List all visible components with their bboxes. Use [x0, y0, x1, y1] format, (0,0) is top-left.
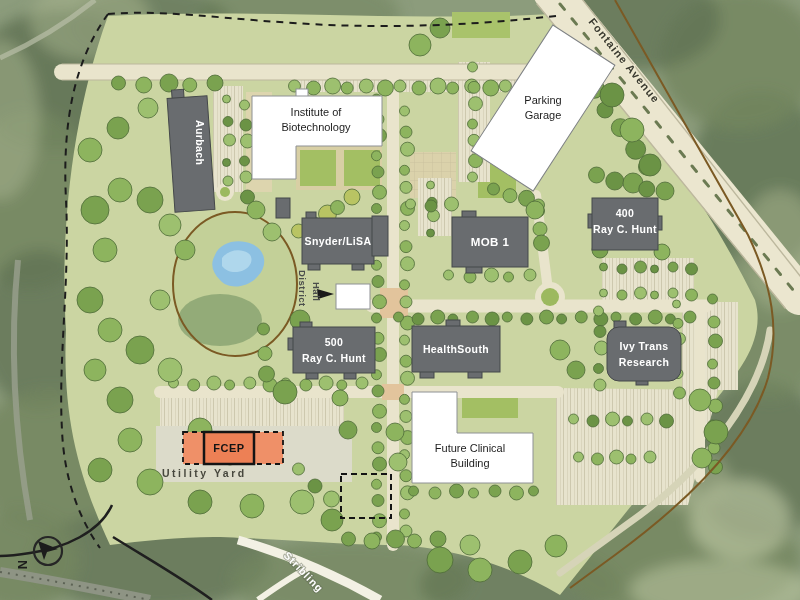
tree-icon [400, 470, 412, 482]
tree-icon [308, 479, 322, 493]
tree-icon [412, 81, 426, 95]
tree-icon [606, 172, 624, 190]
tree-icon [258, 347, 272, 361]
building-rch400-label-line1: 400 [616, 207, 635, 219]
tree-icon [431, 310, 445, 324]
tree-icon [450, 484, 464, 498]
tree-icon [183, 78, 197, 92]
tree-icon [188, 490, 212, 514]
tree-icon [529, 486, 539, 496]
tree-icon [510, 486, 524, 500]
tree-icon [594, 306, 604, 316]
tree-icon [668, 262, 678, 272]
tree-icon [430, 78, 446, 94]
tree-icon [427, 229, 435, 237]
tree-icon [377, 80, 393, 96]
tree-icon [136, 77, 152, 93]
tree-icon [372, 385, 384, 397]
tree-icon [240, 119, 252, 131]
tree-icon [373, 404, 387, 418]
district-hall-label-line1: District [297, 270, 308, 307]
tree-icon [244, 377, 256, 389]
tree-icon [137, 187, 163, 213]
site-plan-map: Aurbach Institute of Biotechnology Parki… [0, 0, 800, 600]
tree-icon [408, 534, 422, 548]
building-aurbach-label: Aurbach [194, 120, 206, 165]
meadow-shade [178, 294, 262, 346]
tree-icon [307, 81, 321, 95]
tree-icon [240, 156, 250, 166]
tree-icon [526, 201, 544, 219]
tree-icon [445, 197, 459, 211]
tree-icon [207, 376, 221, 390]
tree-icon [107, 117, 129, 139]
tree-icon [668, 288, 678, 298]
tree-icon [81, 196, 109, 224]
tree-icon [400, 355, 412, 367]
tree-icon [247, 201, 265, 219]
tree-icon [77, 287, 103, 313]
tree-icon [594, 364, 604, 374]
tree-icon [626, 454, 636, 464]
tree-icon [469, 488, 479, 498]
tree-icon [400, 280, 410, 290]
tree-icon [600, 289, 608, 297]
tree-icon [373, 295, 387, 309]
tree-icon [409, 34, 431, 56]
tree-icon [325, 78, 341, 94]
tree-icon [617, 264, 627, 274]
tree-icon [639, 154, 661, 176]
tree-icon [401, 257, 415, 271]
tree-icon [606, 412, 620, 426]
building-garage-label-line1: Parking [524, 94, 561, 106]
tree-icon [468, 62, 478, 72]
tree-icon [485, 312, 499, 326]
tree-icon [293, 463, 305, 475]
building-ivy-trans-research [607, 321, 681, 385]
tree-icon [188, 379, 200, 391]
tree-icon [324, 491, 340, 507]
tree-icon [372, 276, 384, 288]
tree-icon [708, 359, 718, 369]
tree-icon [138, 98, 158, 118]
tree-icon [592, 453, 604, 465]
tree-icon [386, 423, 404, 441]
tree-icon [373, 514, 387, 528]
tree-icon [372, 479, 382, 489]
tree-icon [639, 181, 655, 197]
tree-icon [373, 457, 387, 471]
tree-icon [112, 76, 126, 90]
tree-icon [468, 81, 480, 93]
tree-icon [488, 183, 500, 195]
tree-icon [430, 531, 446, 547]
tree-icon [321, 509, 343, 531]
tree-icon [319, 376, 333, 390]
tree-icon [339, 421, 357, 439]
tree-icon [686, 289, 698, 301]
tree-icon [430, 18, 450, 38]
tree-icon [489, 485, 501, 497]
tree-icon [483, 80, 499, 96]
tree-icon [460, 535, 480, 555]
tree-icon [373, 185, 387, 199]
tree-icon [290, 490, 314, 514]
tree-icon [468, 119, 478, 129]
tree-icon [372, 151, 382, 161]
tree-icon [656, 182, 674, 200]
building-rch500-label-line1: 500 [325, 336, 344, 348]
tree-icon [708, 294, 718, 304]
tree-icon [574, 452, 584, 462]
building-future-clinical-label-line1: Future Clinical [435, 442, 505, 454]
tree-icon [240, 494, 264, 518]
tree-icon [331, 201, 345, 215]
tree-icon [126, 336, 154, 364]
building-biotech-label-line2: Biotechnology [281, 121, 351, 133]
tree-icon [504, 272, 514, 282]
tree-icon [389, 453, 407, 471]
building-fcep-label: FCEP [213, 442, 244, 454]
tree-icon [332, 390, 348, 406]
lawn-panel [300, 150, 336, 186]
tree-icon [575, 311, 587, 323]
tree-icon [223, 159, 231, 167]
tree-icon [630, 313, 642, 325]
tree-icon [342, 532, 356, 546]
building-healthsouth-label: HealthSouth [423, 343, 489, 355]
tree-icon [684, 311, 696, 323]
building-small-service [276, 198, 290, 218]
tree-icon [594, 326, 606, 338]
building-rch500-label-line2: Ray C. Hunt [302, 352, 366, 364]
tree-icon [409, 486, 419, 496]
tree-icon [372, 495, 384, 507]
tree-icon [521, 313, 533, 325]
building-district-hall [336, 284, 370, 309]
tree-icon [692, 448, 712, 468]
building-future-clinical-label-line2: Building [450, 457, 489, 469]
tree-icon [651, 265, 659, 273]
tree-icon [545, 535, 567, 557]
tree-icon [273, 380, 297, 404]
tree-icon [175, 240, 195, 260]
tree-icon [400, 394, 410, 404]
tree-icon [372, 442, 384, 454]
tree-icon [651, 291, 659, 299]
tree-icon [225, 380, 235, 390]
tree-icon [620, 118, 644, 142]
tree-icon [503, 189, 517, 203]
tree-icon [427, 547, 453, 573]
tree-icon [387, 530, 405, 548]
tree-icon [557, 314, 567, 324]
tree-icon [709, 334, 723, 348]
tree-icon [644, 451, 656, 463]
tree-icon [263, 223, 281, 241]
building-ivy-label-line1: Ivy Trans [619, 340, 668, 352]
building-small-service [372, 216, 388, 256]
tree-icon [337, 380, 347, 390]
tree-icon [467, 311, 479, 323]
tree-icon [159, 214, 181, 236]
district-hall-label-line2: Hall [311, 282, 322, 301]
tree-icon [600, 263, 608, 271]
tree-icon [444, 270, 454, 280]
tree-icon [469, 97, 483, 111]
tree-icon [708, 377, 720, 389]
tree-icon [540, 310, 554, 324]
tree-icon [412, 313, 424, 325]
tree-icon [240, 171, 252, 183]
tree-icon [158, 358, 182, 382]
tree-icon [406, 199, 416, 209]
tree-icon [224, 134, 236, 146]
tree-icon [356, 377, 368, 389]
lawn [452, 12, 510, 38]
tree-icon [300, 379, 312, 391]
building-rch400-label-line2: Ray C. Hunt [593, 223, 657, 235]
tree-icon [137, 469, 163, 495]
tree-icon [569, 414, 579, 424]
tree-icon [401, 142, 415, 156]
roundabout-lawn [541, 288, 559, 306]
tree-icon [499, 80, 511, 92]
tree-icon [84, 359, 106, 381]
building-snyder-label: Snyder/LiSA [305, 235, 372, 247]
tree-icon [704, 420, 728, 444]
tree-icon [372, 313, 382, 323]
building-garage-label-line2: Garage [525, 109, 562, 121]
tree-icon [673, 300, 681, 308]
tree-icon [689, 389, 711, 411]
tree-icon [258, 323, 270, 335]
compass-north-label: N [15, 560, 30, 569]
tree-icon [372, 423, 382, 433]
tree-icon [88, 458, 112, 482]
tree-icon [400, 221, 410, 231]
tree-icon [600, 83, 624, 107]
tree-icon [648, 310, 662, 324]
tree-icon [524, 269, 536, 281]
turnaround-lawn [220, 187, 230, 197]
tree-icon [98, 318, 122, 342]
tree-icon [635, 261, 647, 273]
tree-icon [341, 82, 353, 94]
campus-site-plan: Aurbach Institute of Biotechnology Parki… [0, 0, 800, 600]
tree-icon [78, 138, 102, 162]
tree-icon [259, 366, 275, 382]
tree-icon [447, 82, 459, 94]
tree-icon [617, 290, 627, 300]
tree-icon [567, 361, 585, 379]
tree-icon [610, 450, 624, 464]
tree-icon [589, 167, 605, 183]
tree-icon [533, 222, 547, 236]
tree-icon [641, 413, 653, 425]
tree-icon [594, 379, 606, 391]
tree-icon [400, 165, 410, 175]
tree-icon [429, 487, 441, 499]
tree-icon [223, 176, 233, 186]
tree-icon [372, 166, 384, 178]
tree-icon [400, 106, 410, 116]
tree-icon [400, 410, 412, 422]
tree-icon [240, 100, 250, 110]
tree-icon [534, 235, 550, 251]
tree-icon [468, 558, 492, 582]
tree-icon [674, 387, 686, 399]
tree-icon [400, 296, 412, 308]
tree-icon [400, 181, 412, 193]
tree-icon [635, 287, 647, 299]
tree-icon [468, 172, 478, 182]
tree-icon [107, 387, 133, 413]
building-500-ray-c-hunt [288, 322, 375, 379]
tree-icon [364, 533, 380, 549]
tree-icon [550, 340, 570, 360]
tree-icon [587, 415, 599, 427]
tree-icon [660, 414, 674, 428]
tree-icon [400, 126, 412, 138]
tree-icon [686, 263, 698, 275]
tree-icon [425, 200, 437, 212]
tree-icon [344, 189, 360, 205]
tree-icon [150, 290, 170, 310]
tree-icon [502, 312, 512, 322]
tree-icon [401, 371, 415, 385]
tree-icon [160, 74, 178, 92]
tree-icon [400, 509, 410, 519]
tree-icon [400, 241, 412, 253]
tree-icon [118, 428, 142, 452]
tree-icon [223, 117, 233, 127]
tree-icon [394, 80, 406, 92]
tree-icon [485, 268, 499, 282]
building-biotech-label-line1: Institute of [291, 106, 343, 118]
tree-icon [595, 341, 609, 355]
tree-icon [427, 181, 435, 189]
tree-icon [400, 335, 410, 345]
tree-icon [372, 204, 382, 214]
tree-icon [108, 178, 132, 202]
building-aurbach [167, 88, 215, 212]
utility-yard-label: Utility Yard [162, 467, 247, 479]
tree-icon [359, 79, 373, 93]
tree-icon [708, 316, 720, 328]
tree-icon [394, 312, 404, 322]
tree-icon [207, 75, 223, 91]
tree-icon [673, 318, 683, 328]
tree-icon [93, 238, 117, 262]
tree-icon [623, 416, 633, 426]
tree-icon [508, 550, 532, 574]
building-ivy-label-line2: Research [619, 356, 669, 368]
tree-icon [223, 95, 231, 103]
building-mob1-label: MOB 1 [471, 236, 510, 248]
